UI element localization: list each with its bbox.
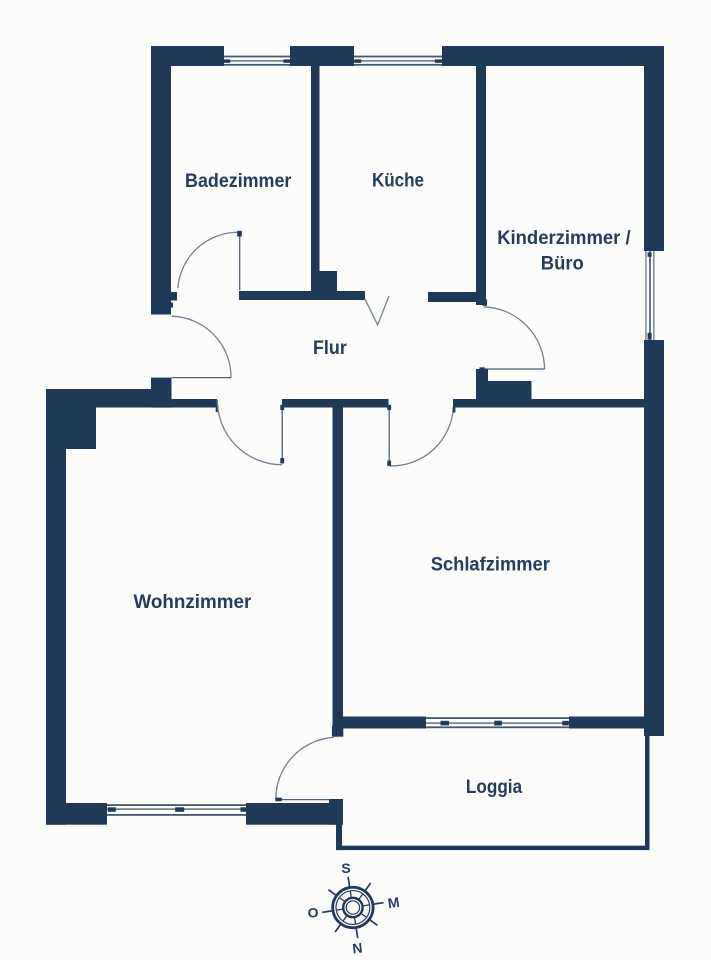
svg-text:Loggia: Loggia [466, 776, 522, 798]
svg-text:Küche: Küche [372, 170, 424, 192]
svg-text:Kinderzimmer /: Kinderzimmer / [497, 227, 631, 249]
svg-text:Schlafzimmer: Schlafzimmer [431, 554, 550, 576]
svg-text:Wohnzimmer: Wohnzimmer [133, 591, 251, 613]
svg-text:Badezimmer: Badezimmer [185, 170, 292, 192]
svg-text:Büro: Büro [541, 253, 584, 275]
svg-text:Flur: Flur [313, 337, 347, 359]
svg-text:M: M [387, 894, 401, 911]
svg-text:S: S [341, 860, 350, 876]
svg-text:O: O [308, 905, 319, 921]
svg-text:N: N [352, 940, 364, 957]
